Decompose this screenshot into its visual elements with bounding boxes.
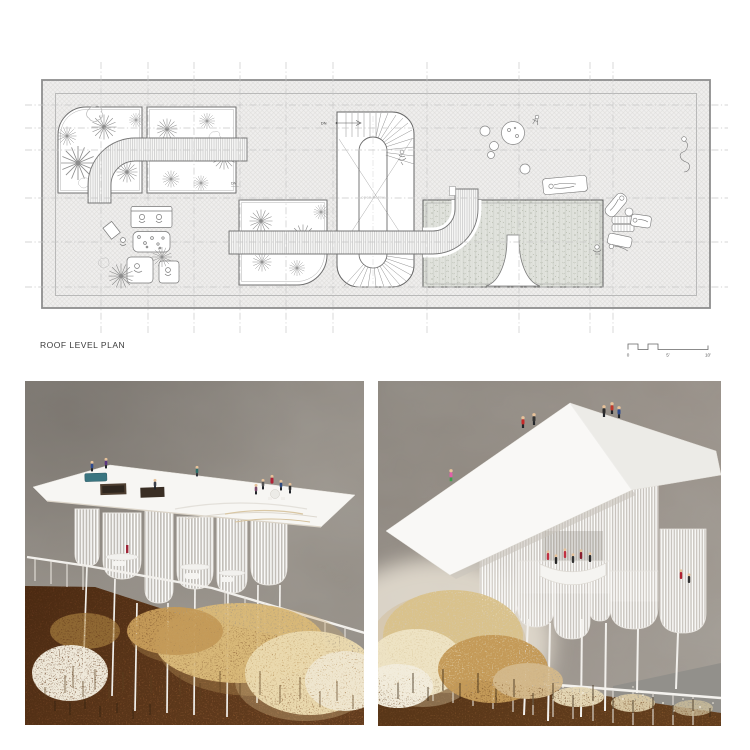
scale-five: 5' <box>666 353 670 358</box>
scale-ten: 10' <box>705 353 711 358</box>
roof-plan: open below DN <box>0 0 750 375</box>
model-photo-right <box>378 381 721 726</box>
roof-opening-2 <box>140 487 164 498</box>
roof-pool <box>85 473 107 482</box>
edge-dn-label: DN <box>231 182 237 186</box>
model-photo-left-svg <box>25 381 364 725</box>
model-photo-left <box>25 381 364 725</box>
presentation-sheet: open below DN <box>0 0 750 750</box>
roof-plan-svg: open below DN <box>0 0 750 375</box>
plan-title: ROOF LEVEL PLAN <box>40 340 125 350</box>
open-below-label: open below <box>361 195 384 200</box>
stair-dn-label: DN <box>321 121 327 126</box>
red-accent <box>126 545 128 553</box>
scale-zero: 0 <box>627 353 630 358</box>
model-photo-right-svg <box>378 381 721 726</box>
